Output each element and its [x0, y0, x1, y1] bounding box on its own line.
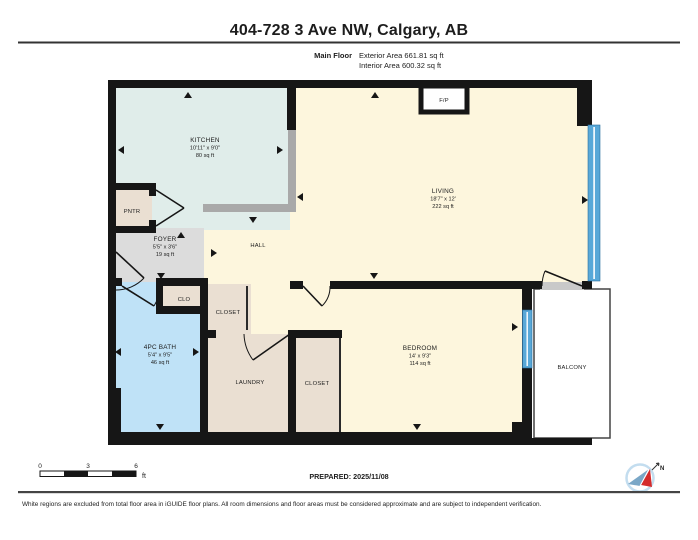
- wall-segment: [108, 226, 156, 233]
- wall-segment: [288, 330, 296, 434]
- window-glass-line: [527, 312, 528, 366]
- window-glass-line: [593, 127, 595, 279]
- room-area-bath: 46 sq ft: [151, 360, 170, 366]
- scale-bar-segment: [64, 471, 88, 477]
- wall-segment: [200, 278, 208, 434]
- room-label-kitchen: KITCHEN: [190, 137, 220, 144]
- room-fill-balcony: [534, 289, 610, 438]
- wall-segment: [290, 281, 303, 289]
- closet-rod: [339, 338, 341, 432]
- room-fills: [112, 84, 610, 438]
- floor-plan-page: 404-728 3 Ave NW, Calgary, AB Main Floor…: [0, 0, 698, 540]
- wall-segment: [330, 281, 542, 289]
- wall-segment: [149, 220, 156, 233]
- wall-segment: [532, 438, 592, 445]
- room-area-living: 222 sq ft: [432, 204, 454, 210]
- wall-segment: [108, 278, 122, 286]
- wall-segment: [108, 183, 156, 190]
- scale-unit: ft: [142, 473, 146, 480]
- room-area-bedroom: 114 sq ft: [409, 361, 430, 367]
- prepared-date-label: PREPARED: 2025/11/08: [309, 472, 388, 481]
- room-fill-clo: [160, 282, 204, 310]
- north-label: N: [660, 466, 664, 472]
- room-label-balcony: BALCONY: [557, 365, 586, 371]
- scale-tick-6: 6: [134, 463, 138, 470]
- room-label-closet-lower: CLOSET: [305, 381, 330, 387]
- wall-segment: [108, 432, 532, 445]
- wall-segment: [512, 422, 524, 432]
- room-dims-foyer: 5'5" x 3'6": [153, 245, 177, 251]
- floor-plan-canvas: 404-728 3 Ave NW, Calgary, AB Main Floor…: [0, 0, 698, 540]
- wall-segment: [577, 80, 592, 126]
- room-label-bedroom: BEDROOM: [403, 345, 437, 352]
- room-label-hall: HALL: [250, 243, 266, 249]
- room-label-closet-upper: CLOSET: [216, 310, 241, 316]
- counter-segment: [203, 204, 296, 212]
- wall-segment: [287, 84, 296, 130]
- wall-segment: [296, 330, 342, 338]
- counter-segment: [288, 128, 296, 212]
- room-area-foyer: 19 sq ft: [156, 252, 175, 258]
- wall-segment: [149, 183, 156, 196]
- room-label-pantry: PNTR: [124, 209, 141, 215]
- room-fill-pantry: [112, 188, 152, 228]
- scale-bar: 0 3 6 ft: [38, 463, 146, 480]
- room-fill-closet-upper: [205, 284, 251, 334]
- room-label-fireplace: F/P: [439, 98, 449, 104]
- interior-area-label: Interior Area 600.32 sq ft: [359, 61, 442, 70]
- room-label-laundry: LAUNDRY: [236, 380, 265, 386]
- room-label-living: LIVING: [432, 188, 454, 195]
- room-area-kitchen: 80 sq ft: [196, 153, 215, 159]
- room-dims-kitchen: 10'11" x 9'0": [190, 146, 220, 152]
- exterior-area-label: Exterior Area 661.81 sq ft: [359, 51, 445, 60]
- balcony-threshold: [540, 282, 584, 290]
- room-label-bath: 4PC BATH: [144, 344, 177, 351]
- page-title: 404-728 3 Ave NW, Calgary, AB: [230, 22, 469, 39]
- room-dims-bath: 5'4" x 9'5": [148, 353, 172, 359]
- header-divider: [18, 42, 680, 44]
- north-arrow-icon: [652, 463, 659, 470]
- disclaimer-text: White regions are excluded from total fl…: [22, 501, 542, 508]
- closet-rod: [246, 286, 248, 330]
- room-label-clo: CLO: [178, 297, 191, 303]
- scale-tick-0: 0: [38, 463, 42, 470]
- floor-label: Main Floor: [314, 51, 352, 60]
- footer-divider: [18, 491, 680, 493]
- room-label-foyer: FOYER: [153, 236, 176, 243]
- wall-segment: [200, 330, 216, 338]
- scale-bar-segment: [112, 471, 136, 477]
- wall-segment: [108, 80, 592, 88]
- room-dims-bedroom: 14' x 9'3": [409, 354, 431, 360]
- room-dims-living: 18'7" x 12': [430, 197, 456, 203]
- north-compass-icon: N: [627, 463, 665, 492]
- wall-segment: [582, 281, 592, 289]
- scale-tick-3: 3: [86, 463, 90, 470]
